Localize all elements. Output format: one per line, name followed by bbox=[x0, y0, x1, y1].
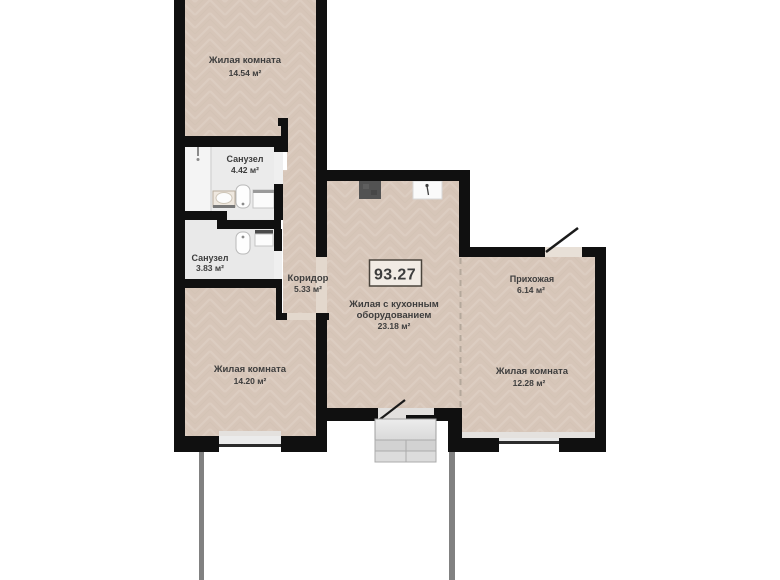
svg-text:Жилая комната: Жилая комната bbox=[208, 55, 282, 66]
svg-text:Жилая с кухонным: Жилая с кухонным bbox=[348, 299, 438, 310]
svg-text:23.18 м²: 23.18 м² bbox=[378, 321, 411, 331]
svg-text:3.83 м²: 3.83 м² bbox=[196, 263, 224, 273]
svg-text:Санузел: Санузел bbox=[226, 154, 263, 164]
svg-text:93.27: 93.27 bbox=[374, 267, 416, 284]
svg-text:Санузел: Санузел bbox=[191, 253, 228, 263]
svg-text:Жилая комната: Жилая комната bbox=[213, 364, 287, 375]
svg-text:Прихожая: Прихожая bbox=[510, 274, 554, 284]
svg-text:6.14 м²: 6.14 м² bbox=[517, 285, 545, 295]
svg-text:оборудованием: оборудованием bbox=[357, 310, 432, 321]
svg-text:Жилая комната: Жилая комната bbox=[495, 366, 569, 377]
svg-text:14.20 м²: 14.20 м² bbox=[234, 376, 267, 386]
svg-text:Коридор: Коридор bbox=[288, 273, 329, 284]
svg-text:4.42 м²: 4.42 м² bbox=[231, 165, 259, 175]
svg-text:5.33 м²: 5.33 м² bbox=[294, 284, 322, 294]
svg-text:14.54 м²: 14.54 м² bbox=[229, 68, 262, 78]
svg-text:12.28 м²: 12.28 м² bbox=[513, 378, 546, 388]
